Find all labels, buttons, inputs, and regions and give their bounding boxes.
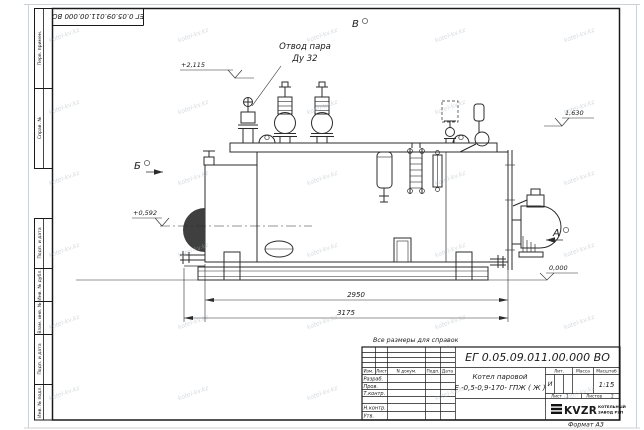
title-block: Все размеры для справок ЕГ 0.05.09.011.0…	[362, 337, 626, 420]
revision-headers: Изм. Лист N докум. Подп. Дата	[363, 369, 453, 375]
level-gauge-column	[408, 143, 425, 194]
signature-rows: Разраб. Пров. Т.контр. Н.контр. Утв.	[364, 377, 386, 420]
org-name-line1: КОТЕЛЬНЫЙ	[598, 404, 626, 409]
product-name-line2: Е -0,5-0,9-170- ГПЖ ( Ж )	[455, 384, 546, 392]
lit-value: И	[548, 380, 553, 388]
right-top-valve	[444, 121, 456, 143]
level-gauge-flat	[433, 151, 442, 192]
lit-mass-scale-headers: Лит. Масса Масштаб	[554, 369, 617, 375]
kvzr-logo-text: KVZR	[564, 405, 597, 417]
format-label: Формат А3	[568, 422, 604, 429]
drain-fitting	[394, 238, 411, 262]
elevation-burner-axis: +0,592	[133, 209, 157, 217]
org-cell: KVZR КОТЕЛЬНЫЙ ЗАВОД РЭП	[551, 404, 626, 417]
view-label-b: Б	[134, 161, 141, 172]
boiler-drawing-svg: Перв. примен. Справ. № Подп. и дата Инв.…	[0, 0, 644, 430]
row-utv: Утв.	[364, 414, 375, 420]
callout-steam-outlet: Отвод пара	[279, 42, 331, 52]
margin-stamp-label: Справ. №	[37, 117, 43, 140]
dimension-overall-length: 3175	[337, 309, 355, 317]
org-name-line2: ЗАВОД РЭП	[598, 410, 623, 415]
scale-value: 1:15	[599, 381, 615, 389]
col-doc: N докум.	[397, 369, 417, 375]
drawing-sheet: kotel-kv.kzkotel-kv.kzkotel-kv.kzkotel-k…	[0, 0, 644, 430]
water-column	[377, 152, 392, 202]
col-izm: Изм.	[363, 369, 373, 375]
view-label-a: А	[552, 228, 560, 239]
lit-header: Лит.	[554, 369, 564, 375]
col-list: Лист	[376, 369, 387, 375]
col-data: Дата	[442, 369, 453, 375]
elevation-valves-top: +2,115	[181, 61, 205, 69]
inverted-designation-text: ЕГ 0.05.09.011.00.000 ВО	[51, 12, 144, 20]
margin-stamp-label: Инв. № дубл.	[37, 269, 43, 300]
safety-valve-2	[310, 82, 334, 143]
margin-stamp-label: Взам. инв. №	[37, 302, 43, 333]
elevation-ground: 0,000	[549, 264, 568, 272]
sheet-label: Лист	[551, 394, 562, 400]
front-section-valve	[203, 151, 215, 165]
support-skid	[198, 252, 488, 280]
margin-stamp-label: Инв. № подл.	[37, 386, 43, 418]
designation-text: ЕГ 0.05.09.011.00.000 ВО	[465, 351, 610, 364]
boiler-shell	[205, 143, 515, 270]
drawing-labels: Отвод пара Ду 32 +2,115 1,630 +0,592 0,0…	[133, 19, 584, 317]
top-designation-stamp: ЕГ 0.05.09.011.00.000 ВО	[51, 9, 144, 26]
gauge-siphon-loop	[460, 104, 489, 152]
row-nkontr: Н.контр.	[364, 406, 386, 412]
sheets-label: Листов	[586, 394, 603, 400]
steam-outlet-valve	[238, 98, 258, 144]
safety-valve-1	[273, 82, 297, 143]
phantom-component	[442, 101, 458, 122]
product-name-line1: Котел паровой	[473, 373, 528, 381]
sheet-value: 1	[566, 394, 569, 400]
mass-header: Масса	[576, 369, 590, 375]
col-podp: Подп.	[426, 369, 439, 375]
row-razrab: Разраб.	[364, 377, 384, 383]
feed-pump	[512, 189, 561, 257]
elevation-boiler-top: 1,630	[565, 109, 584, 117]
view-label-v: В	[352, 19, 359, 30]
dimension-shell-length: 2950	[347, 291, 365, 299]
row-tkontr: Т.контр.	[364, 391, 386, 397]
margin-stamp-label: Подп. и дата	[37, 227, 43, 258]
reference-note: Все размеры для справок	[373, 337, 459, 344]
manhole	[265, 241, 293, 257]
burner	[160, 208, 312, 266]
margin-stamp-label: Подп. и дата	[37, 343, 43, 374]
callout-leader-line	[252, 66, 281, 106]
callout-dn32: Ду 32	[291, 54, 317, 64]
lifting-lug-left	[259, 135, 275, 143]
kvzr-logo-icon	[551, 404, 562, 414]
page-edges	[24, 4, 640, 428]
margin-stamp-label: Перв. примен.	[37, 31, 43, 66]
view-arrows	[144, 18, 568, 240]
view-arrowheads	[154, 169, 555, 242]
boiler-assembly	[76, 18, 594, 322]
sheets-value: 2	[611, 394, 614, 400]
row-prov: Пров.	[364, 384, 379, 390]
scale-header: Масштаб	[596, 369, 617, 375]
